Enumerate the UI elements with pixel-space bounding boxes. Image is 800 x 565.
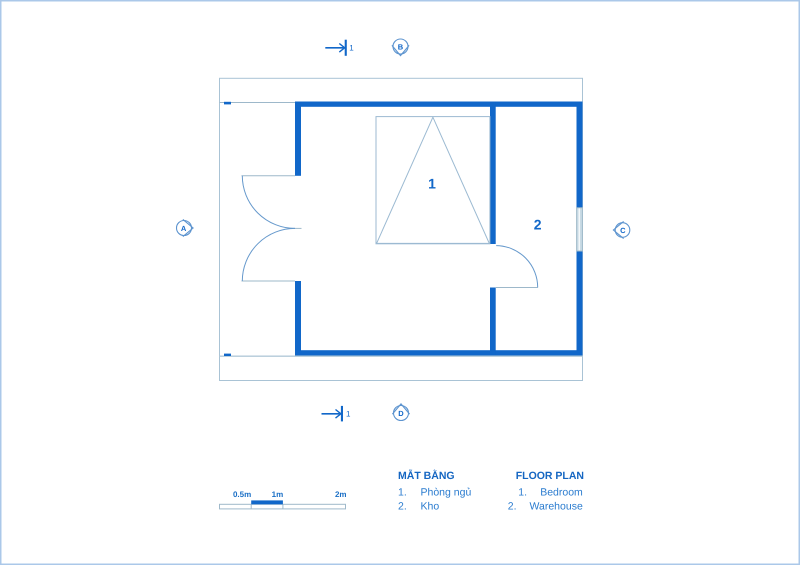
svg-text:0.5m: 0.5m	[233, 490, 251, 499]
svg-text:A: A	[181, 224, 187, 233]
svg-text:2.: 2.	[398, 501, 407, 513]
svg-text:1m: 1m	[272, 490, 284, 499]
svg-text:2.: 2.	[508, 501, 517, 513]
svg-text:MẴT BẰNG: MẴT BẰNG	[398, 469, 455, 482]
svg-text:FLOOR PLAN: FLOOR PLAN	[516, 470, 584, 482]
svg-text:Phòng ngủ: Phòng ngủ	[421, 487, 472, 499]
svg-text:D: D	[398, 409, 404, 418]
svg-text:2: 2	[534, 217, 542, 233]
svg-text:B: B	[398, 42, 404, 51]
svg-text:1: 1	[349, 43, 354, 52]
svg-text:Kho: Kho	[421, 501, 440, 513]
svg-text:2m: 2m	[335, 490, 347, 499]
svg-text:C: C	[620, 226, 626, 235]
svg-text:Warehouse: Warehouse	[529, 501, 582, 513]
svg-text:1: 1	[346, 410, 351, 419]
svg-text:Bedroom: Bedroom	[540, 487, 583, 499]
svg-text:1.: 1.	[398, 487, 407, 499]
svg-text:1: 1	[428, 176, 436, 192]
svg-text:1.: 1.	[518, 487, 527, 499]
